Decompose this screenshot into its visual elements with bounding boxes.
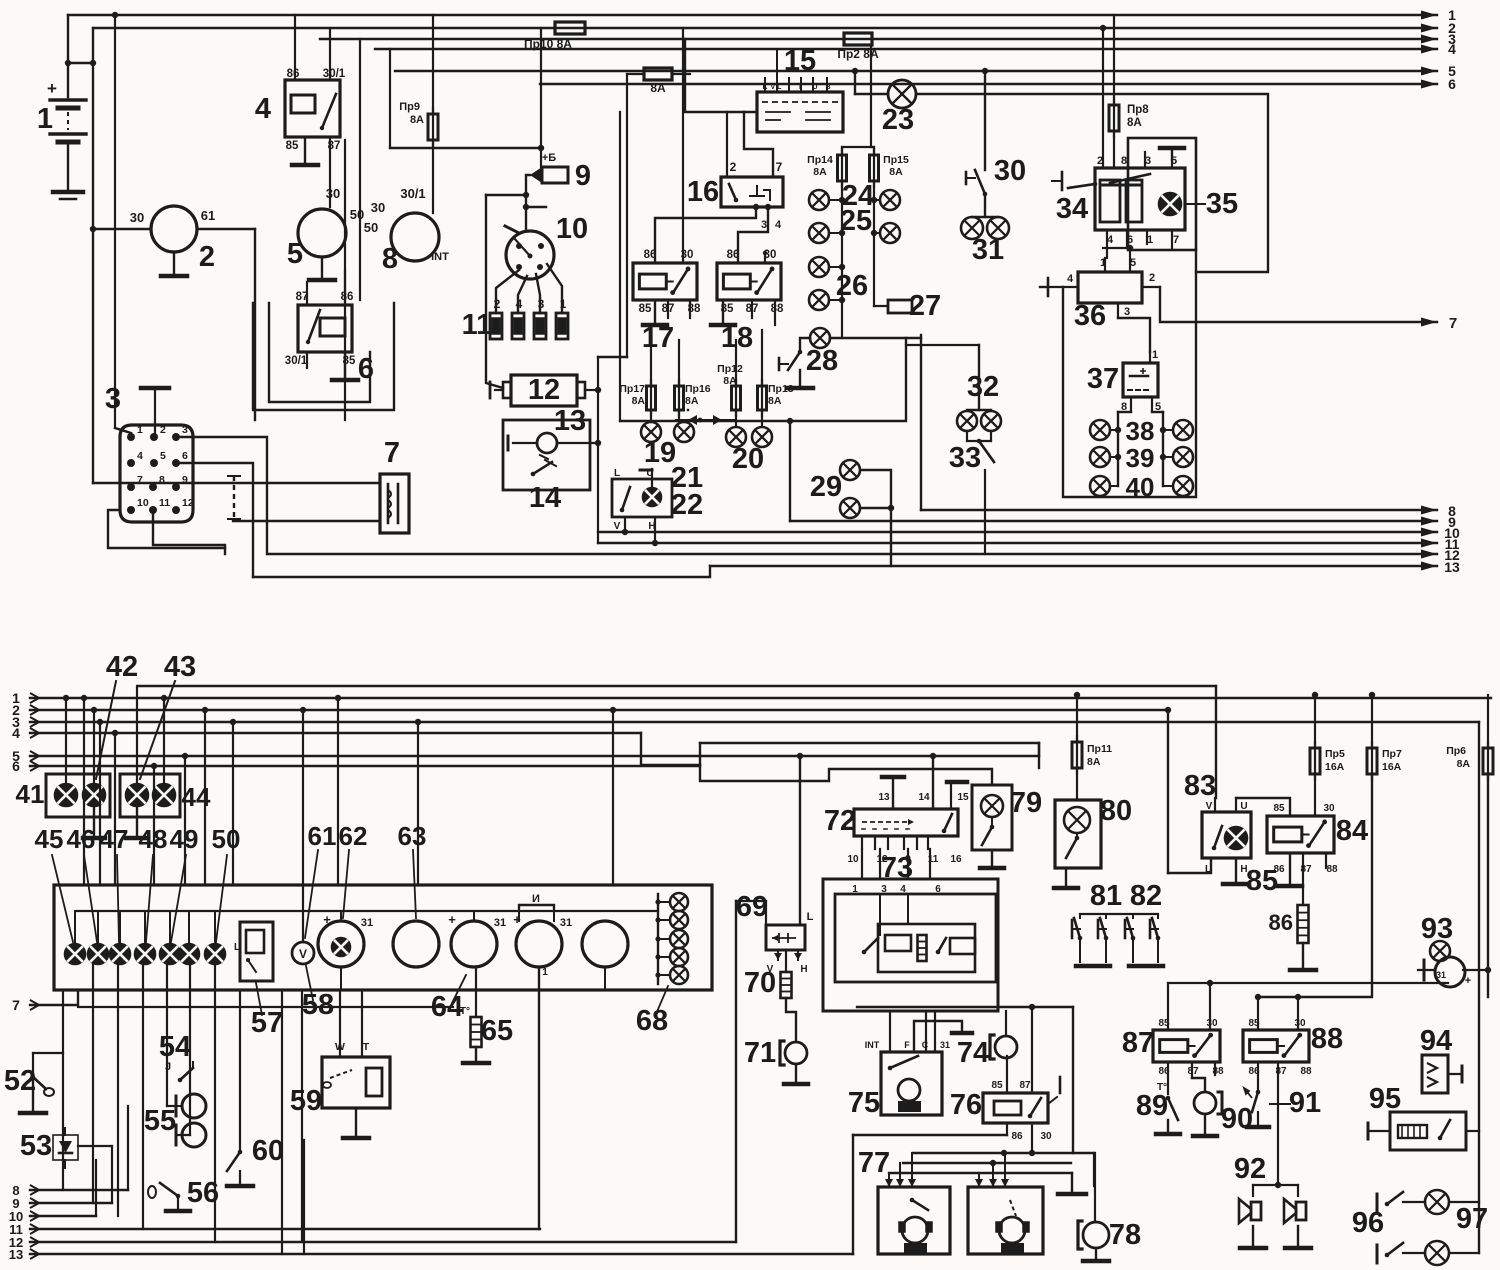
svg-text:16: 16 xyxy=(950,854,962,865)
svg-text:Пр8: Пр8 xyxy=(1127,104,1149,116)
svg-text:46: 46 xyxy=(67,824,96,854)
svg-text:14: 14 xyxy=(918,792,930,803)
svg-text:86: 86 xyxy=(341,291,354,303)
svg-text:+: + xyxy=(448,912,456,927)
svg-text:87: 87 xyxy=(1122,1027,1154,1059)
svg-text:90: 90 xyxy=(1221,1103,1253,1135)
svg-text:50: 50 xyxy=(350,207,364,222)
svg-text:9: 9 xyxy=(575,160,591,192)
svg-text:W: W xyxy=(335,1041,345,1053)
svg-text:I: I xyxy=(799,84,801,91)
svg-text:40: 40 xyxy=(1126,472,1155,502)
svg-text:Пр6: Пр6 xyxy=(1446,745,1466,757)
svg-text:1: 1 xyxy=(560,297,567,311)
svg-text:5: 5 xyxy=(160,450,166,462)
svg-text:12: 12 xyxy=(182,497,194,509)
svg-text:Пр7: Пр7 xyxy=(1382,748,1402,760)
svg-text:43: 43 xyxy=(164,651,196,683)
svg-text:50: 50 xyxy=(212,824,241,854)
svg-text:16А: 16А xyxy=(1325,761,1345,773)
svg-text:1: 1 xyxy=(137,424,143,436)
svg-text:76: 76 xyxy=(950,1089,982,1121)
svg-text:84: 84 xyxy=(1336,815,1368,847)
svg-text:61: 61 xyxy=(201,208,215,223)
svg-text:V: V xyxy=(299,947,307,961)
svg-text:H: H xyxy=(800,964,807,975)
svg-text:57: 57 xyxy=(251,1007,283,1039)
svg-text:2: 2 xyxy=(494,297,501,311)
svg-text:7: 7 xyxy=(776,160,783,174)
svg-text:12: 12 xyxy=(528,374,560,406)
svg-text:4: 4 xyxy=(1448,41,1456,57)
svg-text:47: 47 xyxy=(100,824,129,854)
svg-text:4: 4 xyxy=(12,725,20,741)
svg-text:2: 2 xyxy=(160,424,166,436)
svg-text:1: 1 xyxy=(1152,349,1158,361)
svg-text:L: L xyxy=(234,942,240,953)
svg-text:8А: 8А xyxy=(632,395,646,407)
svg-text:8: 8 xyxy=(382,243,398,275)
svg-text:30/1: 30/1 xyxy=(285,355,308,367)
svg-text:37: 37 xyxy=(1087,363,1119,395)
svg-text:59: 59 xyxy=(290,1085,322,1117)
svg-text:8А: 8А xyxy=(768,395,782,407)
svg-text:54: 54 xyxy=(159,1031,191,1063)
svg-text:60: 60 xyxy=(252,1135,284,1167)
svg-text:Пр2 8А: Пр2 8А xyxy=(837,47,879,61)
svg-text:Пр12: Пр12 xyxy=(717,363,743,375)
svg-text:65: 65 xyxy=(481,1015,513,1047)
svg-text:22: 22 xyxy=(671,489,703,521)
svg-text:72: 72 xyxy=(824,805,856,837)
svg-text:3: 3 xyxy=(105,383,121,415)
svg-text:85: 85 xyxy=(1158,1018,1170,1029)
svg-text:7: 7 xyxy=(12,997,20,1013)
svg-text:8А: 8А xyxy=(685,395,699,407)
svg-text:86: 86 xyxy=(1011,1131,1023,1142)
svg-text:82: 82 xyxy=(1130,880,1162,912)
svg-text:K: K xyxy=(762,84,767,91)
svg-text:3: 3 xyxy=(761,219,767,231)
svg-text:88: 88 xyxy=(1300,1066,1312,1077)
svg-text:V: V xyxy=(614,521,621,532)
svg-text:97: 97 xyxy=(1456,1203,1488,1235)
svg-text:52: 52 xyxy=(4,1065,36,1097)
svg-text:26: 26 xyxy=(836,270,868,302)
svg-text:63: 63 xyxy=(398,821,427,851)
svg-text:86: 86 xyxy=(644,249,657,261)
svg-text:2: 2 xyxy=(730,160,737,174)
svg-text:4: 4 xyxy=(255,93,271,125)
svg-text:8А: 8А xyxy=(813,166,827,178)
svg-text:79: 79 xyxy=(1010,787,1042,819)
svg-text:27: 27 xyxy=(909,290,941,322)
svg-text:13: 13 xyxy=(9,1247,23,1262)
svg-text:+: + xyxy=(47,79,57,98)
svg-text:INT: INT xyxy=(431,251,449,263)
svg-text:16А: 16А xyxy=(1382,761,1402,773)
svg-text:53: 53 xyxy=(20,1130,52,1162)
svg-text:3: 3 xyxy=(538,297,545,311)
svg-text:35: 35 xyxy=(1206,188,1238,220)
svg-text:15: 15 xyxy=(784,45,816,77)
svg-text:3: 3 xyxy=(1124,306,1130,318)
svg-text:13: 13 xyxy=(1444,559,1460,575)
svg-text:30: 30 xyxy=(326,186,340,201)
svg-text:6: 6 xyxy=(358,353,374,385)
svg-text:Пр9: Пр9 xyxy=(399,101,420,113)
svg-text:85: 85 xyxy=(1248,1018,1260,1029)
svg-text:4: 4 xyxy=(137,450,143,462)
svg-text:31: 31 xyxy=(972,234,1004,266)
svg-text:4: 4 xyxy=(516,297,523,311)
svg-text:30: 30 xyxy=(1206,1018,1218,1029)
svg-text:78: 78 xyxy=(1109,1219,1141,1251)
svg-text:Пр5: Пр5 xyxy=(1325,748,1345,760)
svg-text:61: 61 xyxy=(308,821,337,851)
svg-text:30: 30 xyxy=(130,210,144,225)
svg-text:INT: INT xyxy=(865,1040,880,1050)
svg-text:28: 28 xyxy=(806,345,838,377)
svg-text:70: 70 xyxy=(744,967,776,999)
svg-text:U: U xyxy=(812,84,817,91)
svg-text:10: 10 xyxy=(556,213,588,245)
svg-text:88: 88 xyxy=(1311,1023,1343,1055)
svg-text:13: 13 xyxy=(878,792,890,803)
svg-text:10: 10 xyxy=(137,497,149,509)
svg-text:8А: 8А xyxy=(1457,758,1471,770)
svg-text:68: 68 xyxy=(636,1005,668,1037)
svg-text:74: 74 xyxy=(957,1037,989,1069)
svg-text:30: 30 xyxy=(994,155,1026,187)
svg-text:5: 5 xyxy=(287,238,303,270)
svg-text:87: 87 xyxy=(1187,1066,1199,1077)
svg-text:15: 15 xyxy=(957,792,969,803)
svg-text:31: 31 xyxy=(494,917,506,929)
svg-text:69: 69 xyxy=(736,891,768,923)
svg-text:75: 75 xyxy=(848,1087,880,1119)
svg-text:50: 50 xyxy=(364,220,378,235)
svg-text:+: + xyxy=(513,912,521,927)
svg-text:Пр15: Пр15 xyxy=(883,154,909,166)
svg-text:31: 31 xyxy=(361,917,373,929)
svg-text:30: 30 xyxy=(1040,1131,1052,1142)
svg-text:32: 32 xyxy=(967,371,999,403)
svg-text:2: 2 xyxy=(199,241,215,273)
svg-text:85: 85 xyxy=(639,303,652,315)
svg-text:U: U xyxy=(1240,801,1247,812)
svg-text:23: 23 xyxy=(882,104,914,136)
svg-text:71: 71 xyxy=(744,1037,776,1069)
svg-text:85: 85 xyxy=(991,1080,1003,1091)
svg-text:77: 77 xyxy=(858,1147,890,1179)
svg-text:31: 31 xyxy=(1436,970,1446,980)
svg-text:88: 88 xyxy=(771,303,784,315)
svg-text:6: 6 xyxy=(182,450,188,462)
svg-text:8А: 8А xyxy=(889,166,903,178)
svg-text:F: F xyxy=(904,1040,910,1050)
svg-text:20: 20 xyxy=(732,443,764,475)
svg-text:29: 29 xyxy=(810,471,842,503)
svg-text:V L: V L xyxy=(771,84,783,91)
svg-text:33: 33 xyxy=(949,442,981,474)
svg-text:38: 38 xyxy=(1126,416,1155,446)
svg-text:T: T xyxy=(363,1041,370,1053)
svg-text:Пр14: Пр14 xyxy=(807,154,833,166)
svg-text:7: 7 xyxy=(384,437,400,469)
svg-text:83: 83 xyxy=(1184,770,1216,802)
svg-text:Пр11: Пр11 xyxy=(1087,743,1112,755)
svg-text:94: 94 xyxy=(1420,1025,1452,1057)
svg-text:8: 8 xyxy=(1121,155,1127,167)
svg-text:30: 30 xyxy=(371,200,385,215)
svg-text:89: 89 xyxy=(1136,1090,1168,1122)
svg-text:L: L xyxy=(807,911,814,923)
svg-text:87: 87 xyxy=(1019,1080,1031,1091)
svg-text:96: 96 xyxy=(1352,1207,1384,1239)
svg-text:62: 62 xyxy=(339,821,368,851)
svg-text:+: + xyxy=(323,912,331,927)
svg-text:7: 7 xyxy=(1173,234,1179,246)
svg-text:6: 6 xyxy=(12,758,20,774)
svg-text:56: 56 xyxy=(187,1177,219,1209)
svg-text:11: 11 xyxy=(159,497,170,509)
svg-text:14: 14 xyxy=(529,482,561,514)
svg-text:86: 86 xyxy=(287,68,300,80)
svg-text:Т°: Т° xyxy=(460,1006,470,1017)
svg-text:30/1: 30/1 xyxy=(323,68,346,80)
svg-text:И: И xyxy=(532,893,540,905)
svg-text:95: 95 xyxy=(1369,1083,1401,1115)
svg-text:48: 48 xyxy=(139,824,168,854)
svg-text:34: 34 xyxy=(1056,193,1088,225)
svg-text:88: 88 xyxy=(1326,864,1338,875)
svg-text:30: 30 xyxy=(1323,803,1335,814)
svg-text:L: L xyxy=(614,468,620,479)
svg-text:85: 85 xyxy=(286,140,299,152)
svg-text:39: 39 xyxy=(1126,443,1155,473)
svg-text:8А: 8А xyxy=(1127,117,1142,129)
svg-text:81: 81 xyxy=(1090,880,1122,912)
svg-text:2: 2 xyxy=(1149,272,1155,284)
svg-text:86: 86 xyxy=(1273,864,1285,875)
svg-text:V: V xyxy=(1206,801,1213,812)
svg-text:6: 6 xyxy=(1448,76,1456,92)
svg-text:86: 86 xyxy=(1269,910,1293,935)
svg-text:+Б: +Б xyxy=(542,152,556,164)
svg-text:8А: 8А xyxy=(1087,756,1101,768)
svg-text:4: 4 xyxy=(1067,273,1074,285)
svg-text:3: 3 xyxy=(182,424,188,436)
svg-text:1: 1 xyxy=(37,103,53,135)
svg-text:31: 31 xyxy=(560,917,572,929)
svg-text:30: 30 xyxy=(1294,1018,1306,1029)
svg-text:B: B xyxy=(825,84,830,91)
svg-text:11: 11 xyxy=(462,309,493,341)
svg-text:31: 31 xyxy=(940,1040,950,1050)
svg-text:4: 4 xyxy=(775,219,782,231)
svg-text:8А: 8А xyxy=(410,114,424,126)
svg-text:36: 36 xyxy=(1074,300,1106,332)
svg-text:Пр10 8А: Пр10 8А xyxy=(524,37,572,51)
svg-text:Пр17: Пр17 xyxy=(619,383,645,395)
svg-text:1: 1 xyxy=(542,967,548,978)
svg-text:16: 16 xyxy=(687,176,719,208)
svg-text:10: 10 xyxy=(847,854,859,865)
svg-text:80: 80 xyxy=(1100,795,1132,827)
svg-text:92: 92 xyxy=(1234,1153,1266,1185)
svg-text:25: 25 xyxy=(840,205,872,237)
svg-text:+: + xyxy=(1465,975,1471,987)
svg-text:7: 7 xyxy=(1449,315,1457,332)
svg-text:49: 49 xyxy=(170,824,199,854)
svg-text:45: 45 xyxy=(35,824,64,854)
svg-text:41: 41 xyxy=(16,779,45,809)
svg-text:58: 58 xyxy=(302,989,334,1021)
svg-text:85: 85 xyxy=(1273,803,1285,814)
svg-text:J: J xyxy=(165,1061,171,1073)
svg-text:13: 13 xyxy=(554,405,586,437)
svg-text:86: 86 xyxy=(727,249,740,261)
svg-text:8А: 8А xyxy=(650,81,666,95)
svg-text:55: 55 xyxy=(144,1105,176,1137)
svg-text:91: 91 xyxy=(1289,1087,1321,1119)
svg-text:Пр16: Пр16 xyxy=(685,383,711,395)
svg-text:30/1: 30/1 xyxy=(400,186,425,201)
svg-text:42: 42 xyxy=(106,651,138,683)
